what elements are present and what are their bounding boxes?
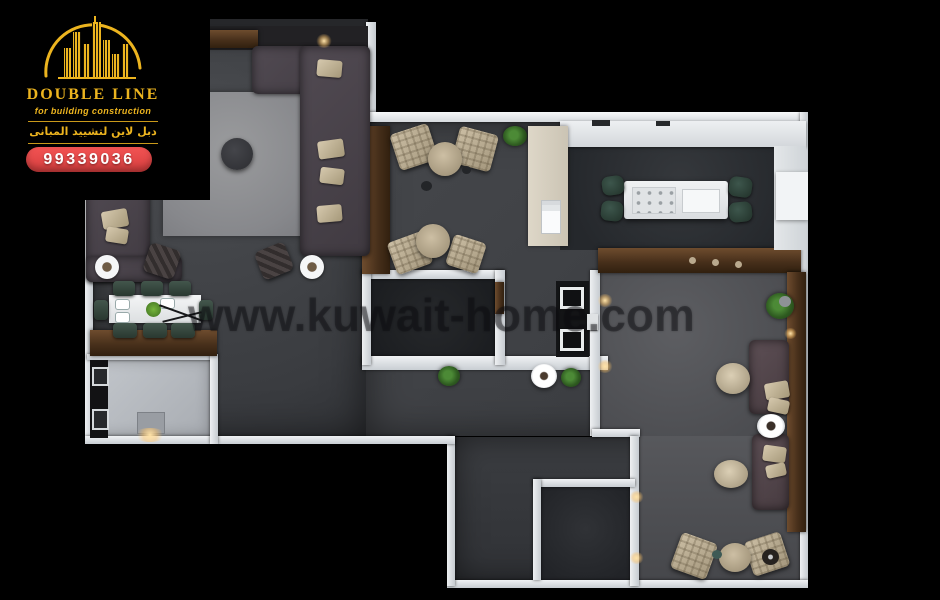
wall-bottom-room-left <box>533 479 541 580</box>
round-table <box>719 543 751 572</box>
sofa-pillow <box>316 204 342 223</box>
coffee-table <box>221 138 253 170</box>
kitchen-lower-cabinets <box>598 248 801 273</box>
place-setting <box>115 299 130 310</box>
side-table-small <box>421 181 432 191</box>
plant <box>438 366 460 386</box>
sofa-pillow <box>317 138 345 159</box>
cabinet-knob <box>689 257 696 264</box>
counter-appliance <box>541 200 561 234</box>
vent-slot <box>592 120 610 126</box>
wall-light <box>316 34 332 48</box>
gold-divider <box>28 143 158 144</box>
place-setting <box>115 312 130 323</box>
entrance-door-light <box>134 428 166 442</box>
bar-stool <box>728 175 754 198</box>
wall-foyer-right <box>210 354 218 444</box>
plant <box>503 126 527 146</box>
dining-chair <box>141 281 163 296</box>
side-table-small <box>462 166 471 174</box>
plant <box>561 368 581 387</box>
floor-bottom-room <box>541 487 630 580</box>
phone-badge: 99339036 <box>26 147 152 172</box>
dining-chair <box>113 281 135 296</box>
cabinet-knob <box>735 261 742 268</box>
phone-number: 99339036 <box>43 151 134 169</box>
round-pouf <box>714 460 748 488</box>
round-table <box>416 224 450 258</box>
dining-chair <box>143 323 167 338</box>
decor-item <box>712 550 722 559</box>
logo-building-icon <box>30 14 156 84</box>
brand-name: DOUBLE LINE <box>18 86 168 104</box>
serving-tray <box>762 549 779 565</box>
bar-stool <box>600 200 624 222</box>
sofa-pillow <box>316 59 342 78</box>
hall-round-table <box>531 364 557 388</box>
round-table <box>428 142 462 176</box>
floor-plan-scene: www.kuwait-home.com DOUBLE LINE for buil… <box>0 0 940 600</box>
round-pouf <box>716 363 750 394</box>
cabinet-knob <box>712 259 719 266</box>
side-table-lamp <box>95 255 119 279</box>
wall-light <box>784 328 797 339</box>
dining-chair <box>113 323 137 338</box>
wall-light <box>597 360 613 373</box>
brand-tagline: for building construction <box>18 106 168 116</box>
dining-chair <box>94 300 108 320</box>
foyer-appliance <box>92 409 109 430</box>
wall-bottom-room-top <box>533 479 635 487</box>
vent-slot <box>656 121 670 126</box>
island-cooktop <box>632 187 676 214</box>
coffee-side-table <box>757 414 785 438</box>
kitchen-counter-block <box>776 172 808 220</box>
gold-divider <box>28 121 158 122</box>
bar-stool <box>728 201 753 223</box>
brand-name-arabic: دبل لاين لتشييد المبانى <box>18 125 168 138</box>
sofa-pillow <box>319 167 345 186</box>
plant-pot <box>779 296 791 307</box>
island-sink <box>682 189 720 213</box>
side-table-lamp <box>300 255 324 279</box>
wall-outer-step <box>447 436 455 586</box>
sofa-pillow <box>762 444 787 463</box>
wall-light <box>629 491 644 503</box>
brand-logo: DOUBLE LINE for building construction دب… <box>0 0 210 200</box>
watermark-text: www.kuwait-home.com <box>188 288 695 342</box>
wall-light <box>629 552 644 564</box>
wall-outer-bottom-right <box>447 580 808 588</box>
foyer-appliance <box>92 367 109 386</box>
sofa-pillow <box>105 226 129 244</box>
